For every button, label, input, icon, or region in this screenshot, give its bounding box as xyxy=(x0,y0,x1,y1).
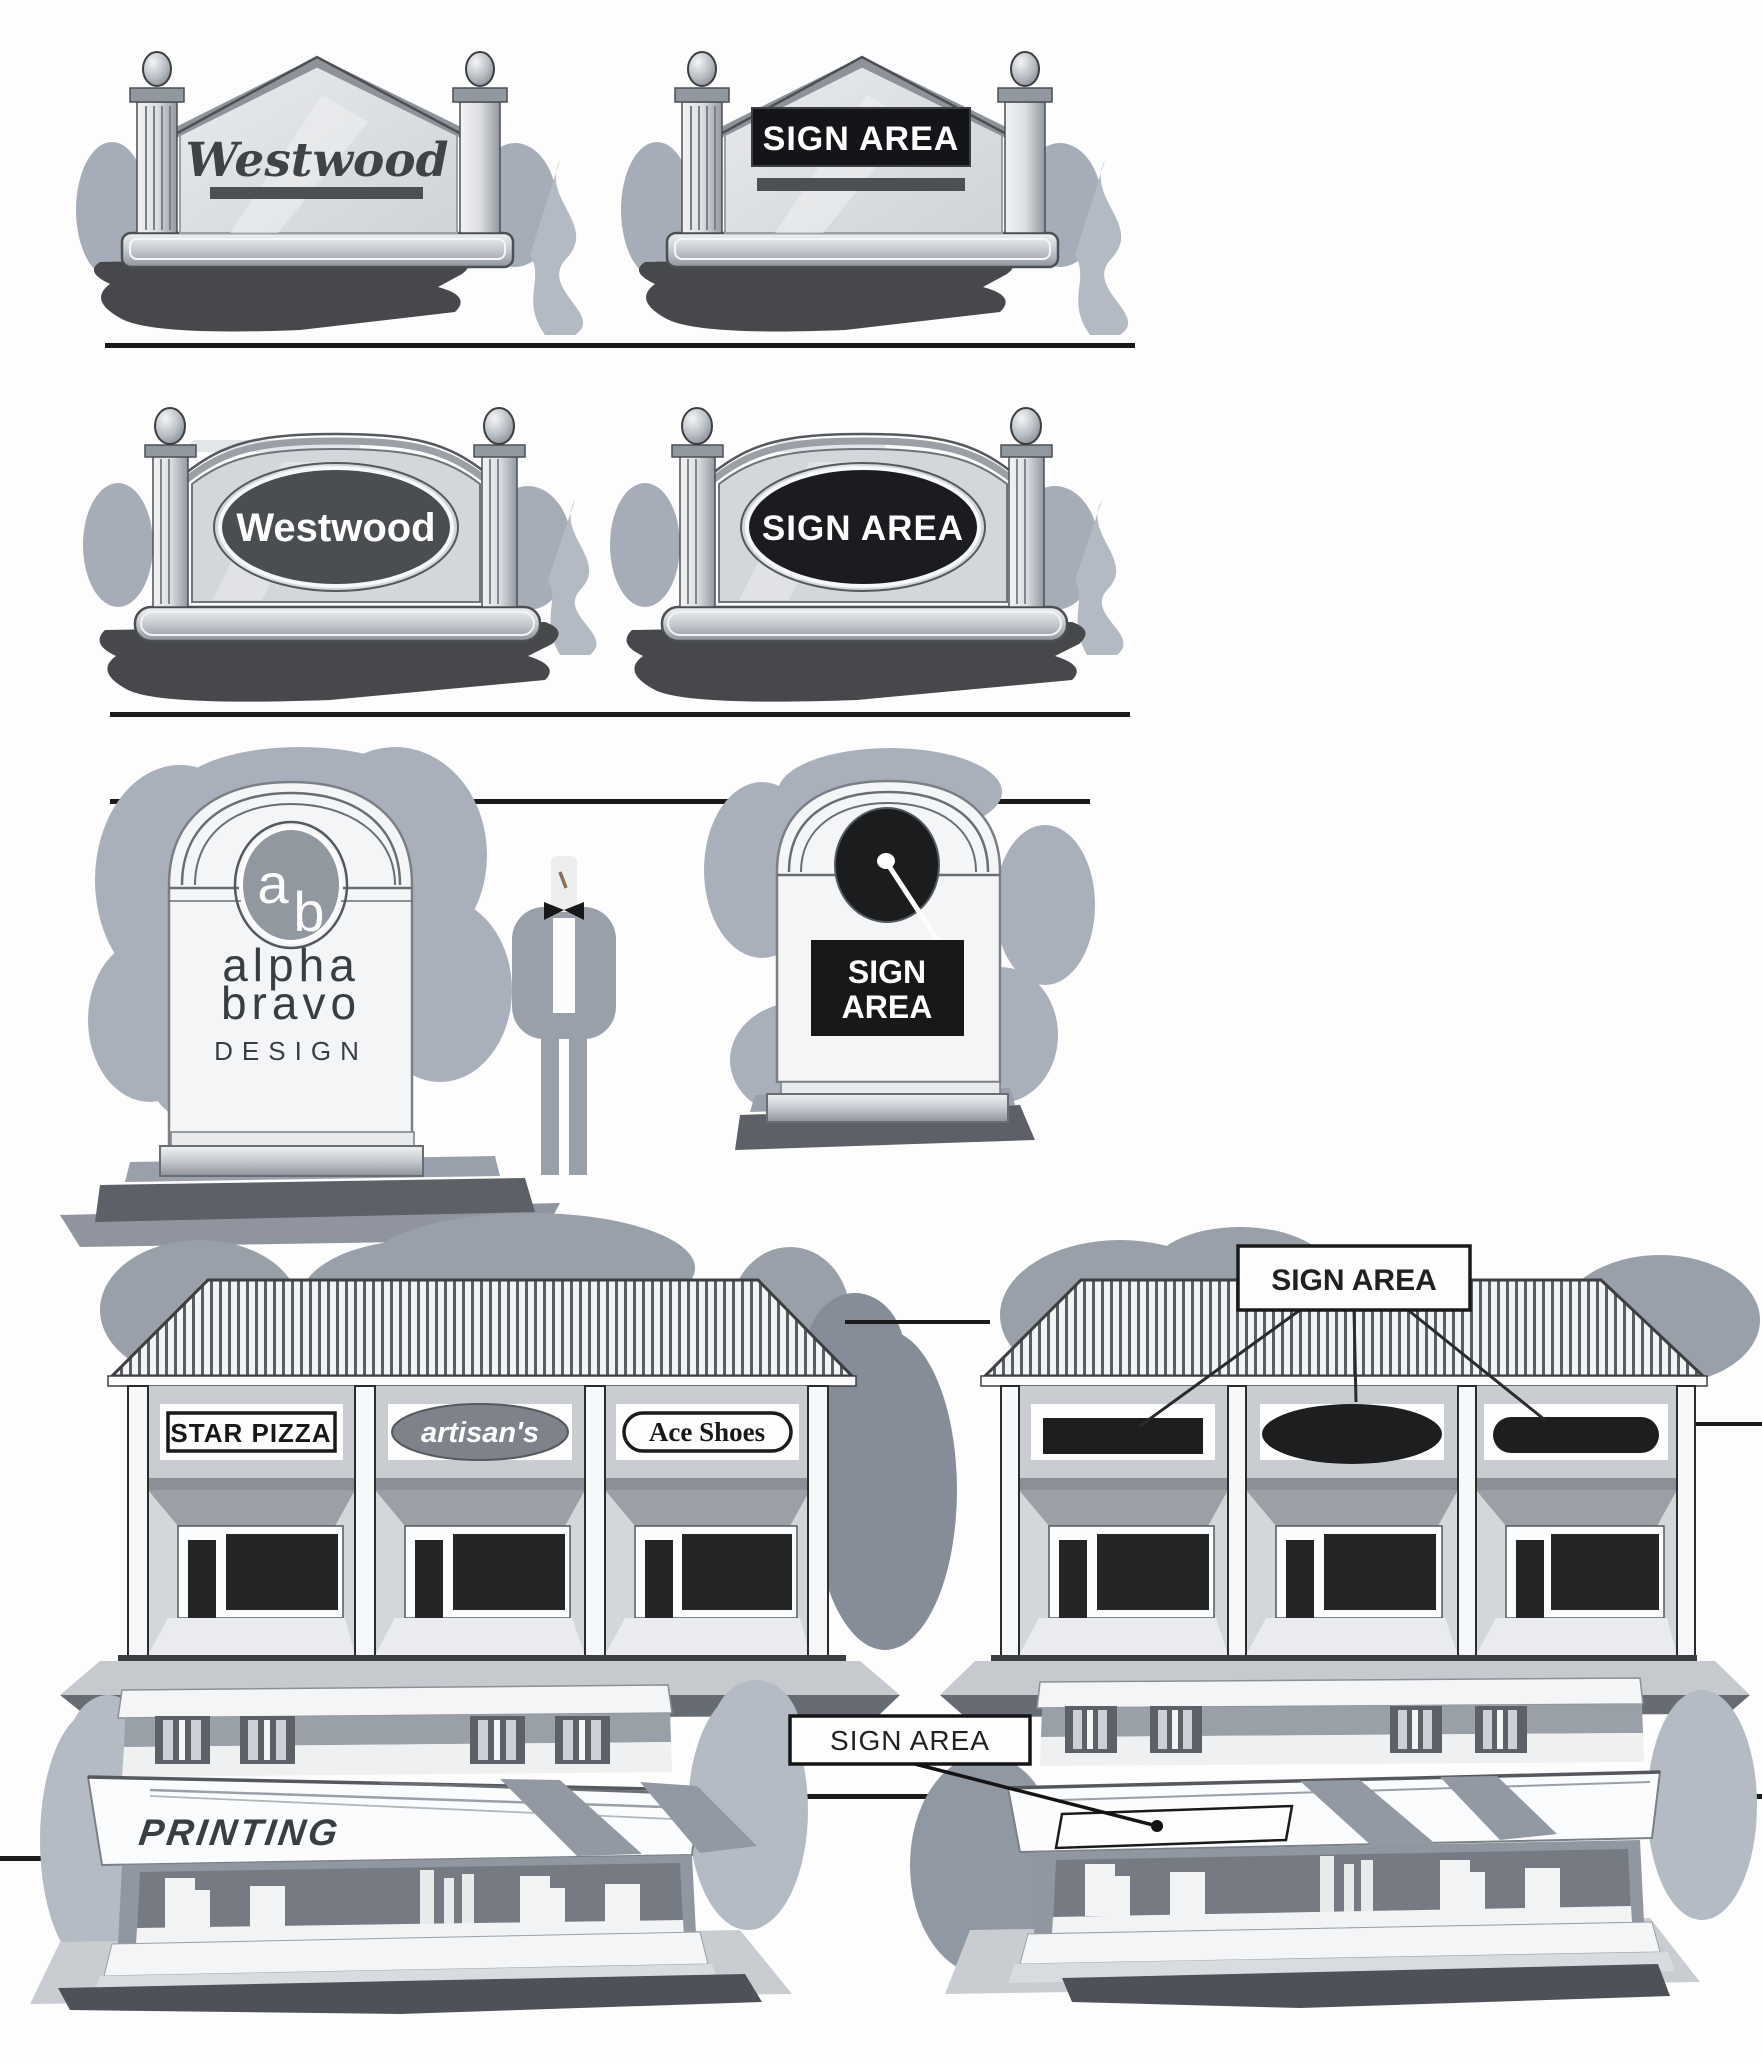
row3-logo-oval xyxy=(241,828,341,942)
lower-storefront xyxy=(1034,1840,1644,1934)
row3-example-sign: a b alpha bravo DESIGN xyxy=(160,782,423,1176)
storefront-bays xyxy=(1019,1490,1677,1658)
row3-logo-letter-b: b xyxy=(293,880,324,943)
sign-area-ellipse xyxy=(1262,1404,1442,1464)
row3-diagram-sign: SIGN AREA xyxy=(767,781,1008,1122)
tenant1-text: STAR PIZZA xyxy=(170,1418,331,1448)
storefront-bays xyxy=(148,1490,810,1658)
tenant-sign-artisans: artisan's xyxy=(388,1404,572,1460)
row3-example-line2: bravo xyxy=(221,977,361,1029)
scanned-sign-area-illustration-page: Westwood SIGN AREA Westwood SIGN AREA xyxy=(0,0,1762,2062)
row1-example-underline-bar xyxy=(210,187,423,199)
row5-awning-buildings: PRINTING xyxy=(0,1678,1762,2014)
tenant-sign-ace-shoes: Ace Shoes xyxy=(616,1404,799,1460)
row2-ground-line xyxy=(110,712,1130,717)
waiter-shirt xyxy=(553,918,575,1013)
floor-line xyxy=(991,1655,1697,1661)
row5-example-building: PRINTING xyxy=(30,1685,792,2014)
floor-line xyxy=(118,1655,846,1661)
lower-storefront xyxy=(118,1855,696,1944)
illustration-canvas: Westwood SIGN AREA Westwood SIGN AREA xyxy=(0,0,1762,2062)
row4-horizon-segment-left xyxy=(845,1320,990,1324)
soffit-shadow xyxy=(1019,1478,1677,1490)
row2-oval-monument-signs: Westwood SIGN AREA xyxy=(83,408,1130,717)
awning-printing-text: PRINTING xyxy=(137,1811,344,1853)
eaves-band xyxy=(108,1376,856,1386)
roof-coping xyxy=(118,1685,672,1718)
row3-example-line3: DESIGN xyxy=(214,1036,368,1066)
roof-coping xyxy=(1037,1678,1643,1708)
row1-diagram-underline-bar xyxy=(757,178,965,191)
sign-area-rectangle xyxy=(1043,1418,1203,1454)
upper-wall-light xyxy=(1040,1733,1644,1766)
row3-arch-monument-signs: a b alpha bravo DESIGN xyxy=(60,747,1095,1247)
row1-ground-line xyxy=(105,343,1135,348)
row3-logo-letter-a: a xyxy=(257,852,289,915)
row5-diagram-building xyxy=(945,1678,1700,2008)
row3-sign-area-line2: AREA xyxy=(842,989,933,1025)
tenant2-text: artisan's xyxy=(421,1417,539,1449)
eaves-band xyxy=(981,1376,1707,1386)
row4-horizon-segment-right xyxy=(1695,1422,1762,1426)
awning: PRINTING xyxy=(88,1777,757,1865)
upper-wall-band xyxy=(1041,1704,1643,1737)
row2-example-sign: Westwood xyxy=(214,463,458,591)
corrugated-roof xyxy=(112,1280,852,1376)
row1-diagram-sign-structure xyxy=(621,52,1128,335)
row2-example-sign-text: Westwood xyxy=(236,506,435,550)
row4-example-building: STAR PIZZA artisan's Ace Shoes xyxy=(60,1280,900,1719)
row2-sign-area-text: SIGN AREA xyxy=(762,509,964,548)
row1-sign-area-text: SIGN AREA xyxy=(763,120,960,158)
row4-storefront-strips: STAR PIZZA artisan's Ace Shoes xyxy=(60,1213,1762,1719)
row1-example-sign: Westwood xyxy=(185,133,448,199)
row1-example-sign-text: Westwood xyxy=(185,133,448,188)
sign-area-rounded-rect xyxy=(1493,1417,1659,1453)
soffit-shadow xyxy=(148,1478,808,1490)
waiter-figure xyxy=(512,856,616,1175)
row4-callout-text: SIGN AREA xyxy=(1271,1264,1437,1297)
row2-diagram-sign: SIGN AREA xyxy=(741,463,985,591)
row3-sign-area-line1: SIGN xyxy=(848,954,926,990)
row1-diagram-sign: SIGN AREA xyxy=(752,108,970,191)
blank-sign-area-outline xyxy=(1056,1806,1292,1848)
row5-callout-text: SIGN AREA xyxy=(830,1725,990,1756)
tenant3-text: Ace Shoes xyxy=(649,1417,765,1447)
tenant-sign-star-pizza: STAR PIZZA xyxy=(160,1404,343,1460)
row4-diagram-building: SIGN AREA xyxy=(940,1246,1750,1717)
row1-gable-monument-signs: Westwood SIGN AREA xyxy=(76,52,1135,348)
